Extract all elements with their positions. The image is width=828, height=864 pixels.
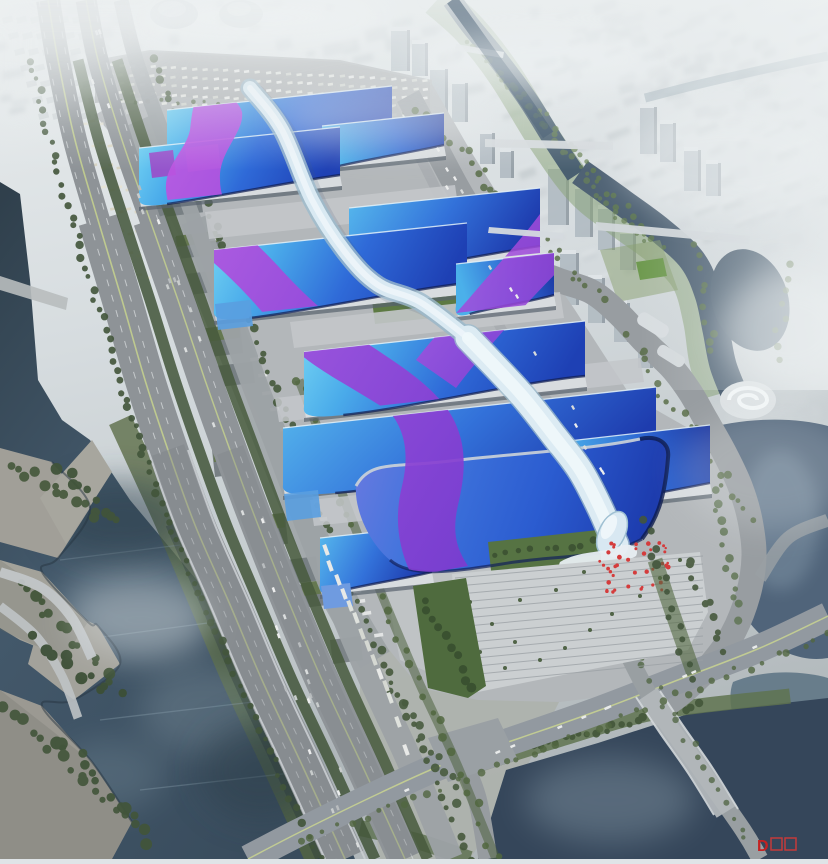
svg-text:D: D — [757, 838, 769, 855]
